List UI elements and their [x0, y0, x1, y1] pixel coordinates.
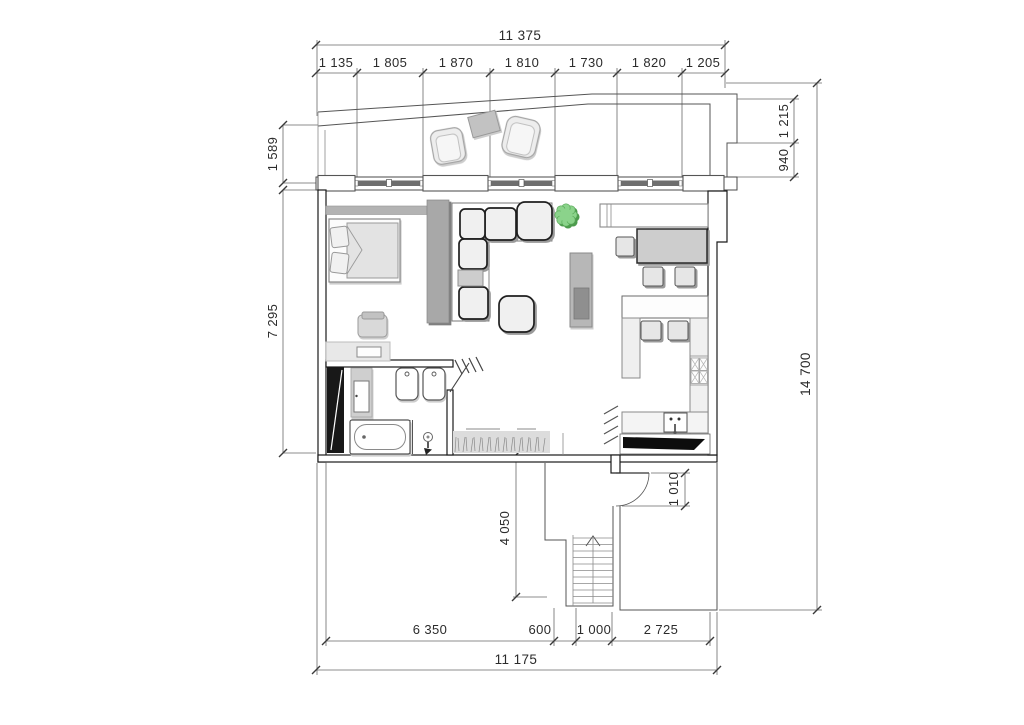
dim-left-balcony: 1 589	[265, 137, 280, 172]
tv-screen	[574, 288, 589, 319]
partition-wall	[427, 200, 449, 323]
dim-bottom-seg-2: 600	[529, 622, 552, 637]
shower-mixer	[424, 448, 432, 455]
balcony-left-edge	[318, 112, 325, 183]
dim-top-seg-7: 1 205	[686, 55, 721, 70]
dark-worktop	[620, 434, 710, 454]
door-hatch-marks	[455, 357, 483, 374]
dim-bottom-seg-4: 2 725	[644, 622, 679, 637]
right-wall	[708, 191, 727, 455]
dim-top-seg-5: 1 730	[569, 55, 604, 70]
dim-top-seg-2: 1 805	[373, 55, 408, 70]
bathroom-side-wall	[447, 390, 453, 455]
pillow	[330, 252, 349, 274]
headboard-ledge	[326, 206, 427, 215]
kitchen-sink	[664, 413, 687, 434]
dim-left-room: 7 295	[265, 304, 280, 339]
bidet	[423, 368, 445, 400]
dining-table	[637, 229, 707, 263]
bedroom-area	[326, 200, 449, 361]
dim-top-total: 11 375	[499, 28, 542, 43]
entry-wall-stub	[611, 455, 620, 473]
dim-right-lower: 940	[776, 149, 791, 172]
vanity-cabinet	[351, 368, 372, 417]
entry-door	[616, 473, 649, 506]
dim-bottom-total: 11 175	[495, 652, 538, 667]
dim-right-upper: 1 215	[776, 104, 791, 139]
window-wall	[316, 176, 737, 192]
laptop	[357, 347, 381, 357]
dim-top-seg-1: 1 135	[319, 55, 354, 70]
plant	[555, 204, 577, 226]
sofa-chaise	[517, 202, 552, 240]
bar-stools	[641, 321, 688, 340]
dim-top-seg-6: 1 820	[632, 55, 667, 70]
stairs-landing	[545, 463, 717, 610]
dim-right-total: 14 700	[798, 352, 813, 396]
balcony-armchair-2	[500, 115, 542, 160]
toilet	[396, 368, 418, 400]
black-wardrobe-door	[327, 367, 344, 453]
dim-entry-opening: 1 010	[666, 472, 681, 507]
desk-chair	[358, 312, 387, 337]
dim-top-seg-4: 1 810	[505, 55, 540, 70]
dim-top-seg-3: 1 870	[439, 55, 474, 70]
dim-inner-vertical: 4 050	[497, 511, 512, 546]
bottom-wall	[318, 455, 717, 462]
dim-bottom-seg-3: 1 000	[577, 622, 612, 637]
sofa-side-table	[458, 270, 483, 286]
kitchen	[604, 296, 710, 454]
hall-closet	[600, 204, 708, 227]
entry-door-swing	[616, 473, 649, 506]
balcony	[318, 94, 737, 183]
cooktop	[691, 358, 708, 384]
living-area	[452, 202, 577, 332]
floor-plan-sheet: 11 375 1 135 1 805 1 870 1 810 1 730 1 8…	[0, 0, 1024, 725]
pillow	[330, 226, 349, 248]
balcony-side-table	[468, 110, 500, 138]
lower-outline	[545, 463, 717, 610]
radiator-hatch	[604, 406, 618, 444]
entry-corridor	[453, 429, 563, 455]
balcony-armchair-1	[429, 126, 466, 165]
bar-counter	[622, 296, 708, 318]
left-wall	[318, 190, 326, 462]
bathtub	[350, 420, 410, 454]
kitchen-counter-left	[622, 318, 640, 378]
dim-bottom-seg-1: 6 350	[413, 622, 448, 637]
shower-area	[410, 420, 433, 455]
glazing-panels	[355, 180, 682, 187]
tv-unit	[570, 253, 592, 327]
ottoman	[499, 296, 534, 332]
bed	[329, 219, 400, 282]
staircase	[573, 535, 613, 606]
floor-plan-drawing: 11 375 1 135 1 805 1 870 1 810 1 730 1 8…	[0, 0, 1024, 725]
